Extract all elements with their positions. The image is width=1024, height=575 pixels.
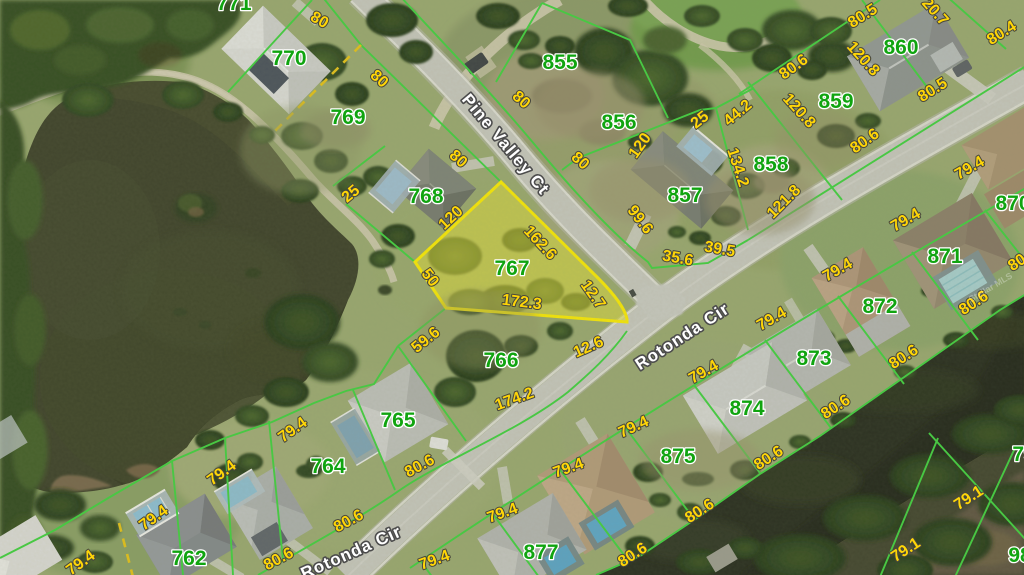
svg-text:872: 872 <box>862 295 897 318</box>
svg-text:870: 870 <box>995 192 1024 215</box>
svg-text:764: 764 <box>310 455 345 478</box>
svg-text:859: 859 <box>818 90 853 113</box>
svg-text:79: 79 <box>1012 443 1024 466</box>
svg-text:874: 874 <box>729 397 764 420</box>
svg-text:858: 858 <box>753 153 788 176</box>
svg-text:770: 770 <box>271 47 306 70</box>
svg-text:860: 860 <box>883 36 918 59</box>
svg-text:877: 877 <box>523 541 558 564</box>
svg-text:771: 771 <box>216 0 251 15</box>
svg-text:98: 98 <box>1008 544 1024 567</box>
svg-text:767: 767 <box>494 257 529 280</box>
svg-text:855: 855 <box>542 51 577 74</box>
svg-text:871: 871 <box>927 245 962 268</box>
svg-text:765: 765 <box>380 409 415 432</box>
svg-text:857: 857 <box>667 184 702 207</box>
svg-text:766: 766 <box>483 349 518 372</box>
svg-text:762: 762 <box>171 547 206 570</box>
svg-text:856: 856 <box>601 111 636 134</box>
svg-text:768: 768 <box>408 185 443 208</box>
svg-text:769: 769 <box>330 106 365 129</box>
svg-text:875: 875 <box>660 445 695 468</box>
svg-text:873: 873 <box>796 347 831 370</box>
